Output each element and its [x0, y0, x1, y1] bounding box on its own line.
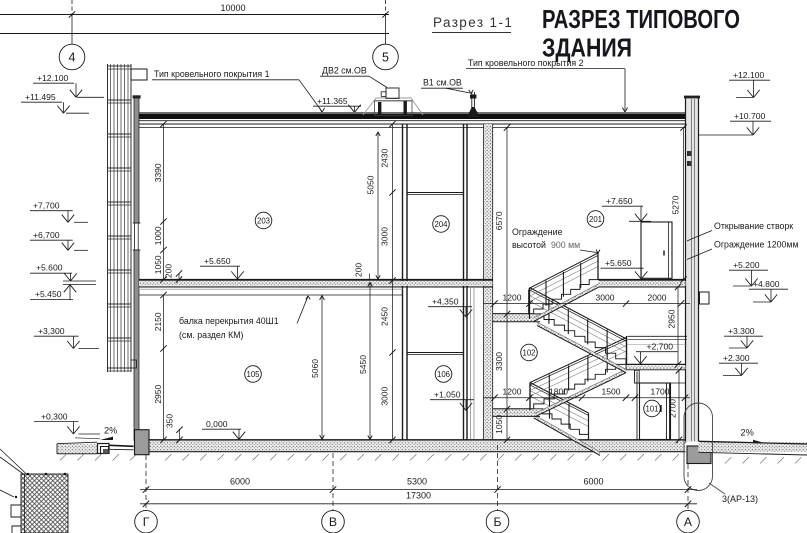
svg-text:+11.495: +11.495: [25, 92, 56, 102]
svg-text:РАЗРЕЗ ТИПОВОГО: РАЗРЕЗ ТИПОВОГО: [542, 4, 740, 34]
svg-text:200: 200: [164, 264, 174, 278]
svg-text:201: 201: [589, 215, 602, 224]
svg-text:+5.650: +5.650: [605, 258, 632, 268]
svg-text:0,000: 0,000: [206, 419, 228, 429]
svg-text:Ограждение: Ограждение: [512, 227, 563, 237]
svg-text:1800: 1800: [549, 387, 568, 397]
svg-text:балка перекрытия 40Ш1: балка перекрытия 40Ш1: [179, 316, 279, 326]
svg-text:+11.365: +11.365: [317, 96, 348, 106]
svg-text:2430: 2430: [380, 148, 390, 167]
svg-text:+1,050: +1,050: [434, 390, 461, 400]
svg-text:6570: 6570: [494, 211, 504, 230]
svg-text:101: 101: [645, 404, 658, 413]
svg-text:Тип кровельного покрытия 1: Тип кровельного покрытия 1: [154, 69, 270, 79]
svg-text:В1 см.ОВ: В1 см.ОВ: [423, 78, 462, 88]
svg-text:Разрез 1-1: Разрез 1-1: [433, 15, 513, 30]
svg-text:+5.200: +5.200: [733, 260, 760, 270]
svg-text:1200: 1200: [503, 387, 522, 397]
svg-text:1050: 1050: [494, 415, 504, 434]
svg-text:Б: Б: [494, 515, 502, 529]
svg-text:5050: 5050: [366, 175, 376, 194]
svg-text:2950: 2950: [153, 384, 163, 403]
svg-text:Ограждение 1200мм: Ограждение 1200мм: [714, 240, 799, 250]
svg-text:6000: 6000: [230, 477, 250, 487]
svg-text:3390: 3390: [153, 163, 163, 182]
svg-text:105: 105: [246, 370, 260, 379]
svg-text:5450: 5450: [358, 355, 368, 374]
svg-text:3000: 3000: [380, 386, 390, 405]
svg-text:+0,300: +0,300: [41, 411, 68, 421]
svg-text:+5.450: +5.450: [35, 289, 62, 299]
svg-text:106: 106: [437, 370, 450, 379]
svg-text:+5.600: +5.600: [36, 263, 63, 273]
svg-text:ДВ2 см.ОВ: ДВ2 см.ОВ: [322, 66, 367, 76]
svg-text:5300: 5300: [407, 477, 427, 487]
svg-text:+4,350: +4,350: [432, 297, 459, 307]
svg-text:+4.800: +4.800: [753, 279, 780, 289]
svg-text:+2,700: +2,700: [647, 342, 674, 352]
svg-text:3300: 3300: [494, 352, 504, 371]
svg-text:4: 4: [69, 51, 76, 65]
svg-text:+2.300: +2.300: [723, 353, 750, 363]
svg-text:3(АР-13): 3(АР-13): [722, 494, 758, 504]
svg-text:102: 102: [522, 348, 535, 357]
svg-text:6000: 6000: [583, 477, 603, 487]
svg-text:10000: 10000: [220, 3, 245, 13]
svg-text:+12.100: +12.100: [37, 73, 69, 83]
svg-text:1200: 1200: [503, 293, 522, 303]
svg-text:2950: 2950: [667, 309, 677, 328]
svg-text:В: В: [329, 515, 337, 529]
svg-text:5060: 5060: [310, 359, 320, 378]
svg-text:+3.300: +3.300: [728, 326, 755, 336]
svg-text:900 мм: 900 мм: [551, 240, 580, 250]
svg-text:+10.700: +10.700: [734, 111, 766, 121]
svg-text:203: 203: [257, 216, 270, 225]
svg-text:2450: 2450: [380, 307, 390, 326]
svg-text:+7.650: +7.650: [606, 196, 633, 206]
svg-text:5: 5: [382, 51, 389, 65]
svg-text:Г: Г: [143, 515, 150, 529]
svg-text:200: 200: [354, 263, 364, 277]
svg-text:2%: 2%: [104, 426, 117, 436]
svg-text:1000: 1000: [153, 226, 163, 245]
svg-text:1500: 1500: [602, 387, 621, 397]
svg-text:5270: 5270: [671, 195, 681, 214]
svg-text:А: А: [684, 515, 693, 529]
svg-text:+3,300: +3,300: [38, 326, 65, 336]
svg-text:3000: 3000: [596, 293, 615, 303]
svg-text:+12.100: +12.100: [733, 70, 765, 80]
svg-text:Тип кровельного покрытия 2: Тип кровельного покрытия 2: [468, 58, 584, 68]
svg-text:Открывание створк: Открывание створк: [714, 221, 793, 231]
svg-text:2000: 2000: [648, 293, 667, 303]
svg-text:+6,700: +6,700: [33, 230, 60, 240]
svg-text:2150: 2150: [153, 312, 163, 331]
svg-text:+5.650: +5.650: [204, 256, 231, 266]
svg-text:3000: 3000: [380, 227, 390, 246]
svg-text:2700: 2700: [668, 399, 678, 418]
svg-text:2%: 2%: [741, 428, 754, 438]
svg-text:высотой: высотой: [512, 240, 546, 250]
svg-text:17300: 17300: [406, 491, 431, 501]
svg-text:(см. раздел КМ): (см. раздел КМ): [179, 330, 244, 340]
svg-text:1050: 1050: [153, 255, 163, 274]
svg-text:350: 350: [165, 414, 175, 428]
svg-text:1700: 1700: [651, 387, 670, 397]
svg-text:+7,700: +7,700: [33, 201, 60, 211]
svg-text:204: 204: [434, 220, 448, 229]
